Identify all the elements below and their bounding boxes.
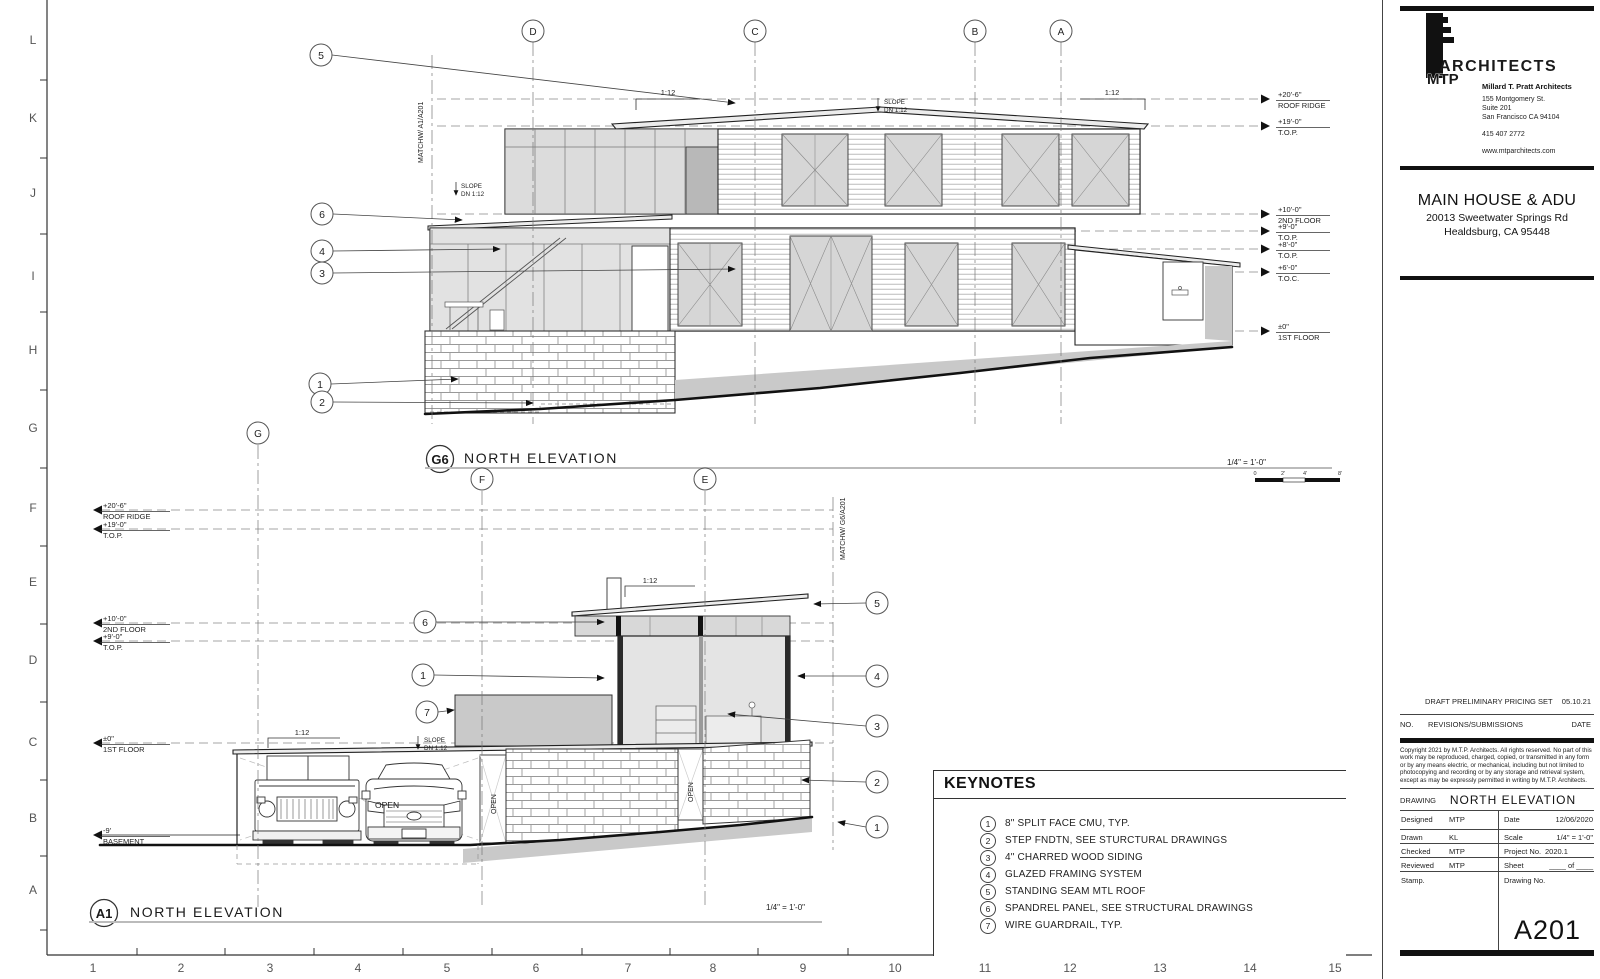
border-number: 15 [1328, 961, 1342, 975]
border-letter: C [29, 735, 38, 749]
keynote-text: 8" SPLIT FACE CMU, TYP. [1005, 818, 1130, 829]
scale-value: 1/4" = 1'-0" [1556, 833, 1593, 842]
keynote-item: 3 4" CHARRED WOOD SIDING [980, 849, 1346, 866]
keynote-ref: 1 [874, 822, 880, 834]
submission-date: 05.10.21 [1562, 697, 1591, 706]
level-marker: +9'-0" T.O.P. [1261, 222, 1330, 242]
level-value: +10'-0" [1278, 205, 1302, 214]
scalebar-tick: 2' [1281, 471, 1285, 477]
keynote-text: 4" CHARRED WOOD SIDING [1005, 852, 1143, 863]
grid-bubble-label: F [479, 475, 485, 486]
view-tag: G6 [431, 452, 448, 467]
grid-bubble-label: D [529, 27, 536, 38]
divider-bar [1400, 950, 1594, 956]
border-number: 12 [1063, 961, 1077, 975]
firm-address-line: San Francisco CA 94104 [1482, 114, 1559, 121]
border-letter: A [29, 883, 37, 897]
keynote-text: GLAZED FRAMING SYSTEM [1005, 869, 1142, 880]
revisions-header: REVISIONS/SUBMISSIONS [1428, 720, 1523, 729]
level-value: +10'-0" [103, 614, 127, 623]
firm-website: www.mtparchitects.com [1482, 148, 1556, 155]
level-marker: +9'-0" T.O.P. [93, 632, 170, 652]
sheet-label: Sheet [1504, 861, 1524, 870]
stamp-label: Stamp. [1401, 876, 1425, 885]
level-marker: ±0" 1ST FLOOR [1261, 322, 1330, 342]
keynote-item: 6 SPANDREL PANEL, SEE STRUCTURAL DRAWING… [980, 900, 1346, 917]
divider-line [1400, 843, 1594, 844]
keynote-ref: 6 [319, 209, 325, 221]
scalebar-tick: 8' [1338, 471, 1342, 477]
view-tag: A1 [96, 906, 113, 921]
level-name: ROOF RIDGE [1278, 101, 1326, 110]
border-number: 5 [444, 961, 451, 975]
firm-phone: 415 407 2772 [1482, 131, 1525, 138]
keynote-text: WIRE GUARDRAIL, TYP. [1005, 920, 1123, 931]
grid-bubble-label: B [972, 27, 979, 38]
view-scale: 1/4" = 1'-0" [1227, 458, 1266, 467]
border-letter: K [29, 111, 37, 125]
project-info: MAIN HOUSE & ADU 20013 Sweetwater Spring… [1400, 192, 1594, 238]
keynotes-title: KEYNOTES [934, 771, 1346, 799]
level-value: +19'-0" [103, 520, 127, 529]
level-name: T.O.C. [1278, 274, 1299, 283]
border-letter: B [29, 811, 37, 825]
level-marker: ±0" 1ST FLOOR [93, 734, 170, 754]
g6-matchline-label: MATCHW/ A1/A201 [418, 102, 425, 163]
a1-matchline-label: MATCHW/ G6/A201 [840, 497, 847, 560]
keynote-number: 2 [980, 833, 996, 849]
drawn-value: KL [1449, 833, 1458, 842]
keynote-ref: 2 [319, 397, 325, 409]
keynote-ref: 4 [874, 671, 880, 683]
keynote-ref: 3 [319, 268, 325, 280]
level-value: +6'-0" [1278, 263, 1298, 272]
graphic-scale-bar: 0 2' 4' 8' [1253, 471, 1342, 482]
keynotes-panel: KEYNOTES 1 8" SPLIT FACE CMU, TYP. 2 STE… [933, 770, 1346, 956]
border-number: 1 [90, 961, 97, 975]
level-marker: +19'-0" T.O.P. [93, 520, 170, 540]
keynote-ref: 2 [874, 777, 880, 789]
border-letter: H [29, 343, 38, 357]
project-name: MAIN HOUSE & ADU [1400, 192, 1594, 210]
keynote-ref: 1 [317, 379, 323, 391]
reviewed-label: Reviewed [1401, 861, 1434, 870]
view-title: NORTH ELEVATION [464, 450, 618, 466]
designed-value: MTP [1449, 815, 1465, 824]
keynote-ref: 4 [319, 246, 325, 258]
border-number: 10 [888, 961, 902, 975]
border-number: 6 [533, 961, 540, 975]
level-value: +19'-0" [1278, 117, 1302, 126]
revisions-date-header: DATE [1572, 720, 1591, 729]
date-label: Date [1504, 815, 1520, 824]
slope-ratio-label: 1:12 [1105, 88, 1120, 97]
keynote-ref: 6 [422, 617, 428, 629]
keynote-ref: 3 [874, 721, 880, 733]
border-row-letters: L K J I H G F E D C B A [28, 33, 37, 897]
divider-bar [1400, 166, 1594, 170]
level-value: +9'-0" [1278, 222, 1298, 231]
keynote-number: 5 [980, 884, 996, 900]
grid-bubble-label: G [254, 429, 262, 440]
checked-label: Checked [1401, 847, 1431, 856]
keynote-number: 7 [980, 918, 996, 934]
level-name: BASEMENT [103, 837, 145, 846]
level-marker: +19'-0" T.O.P. [1261, 117, 1330, 137]
border-letter: D [29, 653, 38, 667]
slope-ratio-label: 1:12 [643, 576, 658, 585]
level-value: +9'-0" [103, 632, 123, 641]
slope-dn-label: DN 1:12 [424, 745, 448, 752]
grid-bubble-label: A [1058, 27, 1065, 38]
border-number: 14 [1243, 961, 1257, 975]
g6-grid-bubbles: D C B A [522, 20, 1072, 42]
basement-dashed-outline [237, 845, 478, 864]
level-name: T.O.P. [103, 643, 123, 652]
project-no-value: 2020.1 [1545, 847, 1568, 856]
copyright-notice: Copyright 2021 by M.T.P. Architects. All… [1400, 747, 1594, 784]
level-name: 1ST FLOOR [103, 745, 145, 754]
keynote-item: 4 GLAZED FRAMING SYSTEM [980, 866, 1346, 883]
view-title: NORTH ELEVATION [130, 904, 284, 920]
keynote-item: 1 8" SPLIT FACE CMU, TYP. [980, 815, 1346, 832]
divider-line [1400, 871, 1594, 872]
project-address: 20013 Sweetwater Springs Rd [1400, 212, 1594, 224]
slope-dn-label: DN 1:12 [884, 107, 908, 114]
a1-level-markers: +20'-6" ROOF RIDGE +19'-0" T.O.P. +10'-0… [93, 501, 170, 846]
a1-north-elevation: MATCHW/ G6/A201 G F E 1:12 1:12 SLOPE DN… [89, 422, 888, 927]
date-value: 12/06/2020 [1555, 815, 1593, 824]
drawing-sheet: L K J I H G F E D C B A 1 2 3 4 5 6 7 8 … [0, 0, 1600, 979]
table-divider [1498, 810, 1499, 950]
border-number: 4 [355, 961, 362, 975]
level-marker: +10'-0" 2ND FLOOR [93, 614, 170, 634]
view-scale: 1/4" = 1'-0" [766, 903, 805, 912]
grid-bubble-label: E [702, 475, 709, 486]
divider-line [1400, 788, 1594, 789]
border-number: 7 [625, 961, 632, 975]
divider-bar [1400, 276, 1594, 280]
submission-label: DRAFT PRELIMINARY PRICING SET [1425, 697, 1553, 706]
elevation-drawings-canvas: L K J I H G F E D C B A 1 2 3 4 5 6 7 8 … [0, 0, 1600, 979]
g6-view-title: G6 NORTH ELEVATION 1/4" = 1'-0" 0 2' 4' … [425, 446, 1342, 483]
project-address: Healdsburg, CA 95448 [1400, 226, 1594, 238]
keynote-number: 4 [980, 867, 996, 883]
divider-line [1400, 857, 1594, 858]
level-marker: +20'-6" ROOF RIDGE [93, 501, 170, 521]
level-marker: -9' BASEMENT [93, 826, 170, 846]
slope-dn-label: SLOPE [461, 183, 482, 190]
keynote-text: STEP FNDTN, SEE STURCTURAL DRAWINGS [1005, 835, 1227, 846]
logo-mtp-text: MTP [1427, 71, 1459, 88]
vintage-suv [253, 756, 361, 845]
a1-view-title: A1 NORTH ELEVATION 1/4" = 1'-0" [89, 900, 822, 927]
border-letter: I [31, 269, 34, 283]
level-value: -9' [103, 826, 112, 835]
firm-name: Millard T. Pratt Architects [1482, 82, 1572, 91]
sheet-of-value: ____ of ____ [1549, 861, 1593, 870]
level-name: T.O.P. [1278, 128, 1298, 137]
slope-dn-label: SLOPE [884, 99, 905, 106]
keynote-ref: 7 [424, 707, 430, 719]
keynotes-list: 1 8" SPLIT FACE CMU, TYP. 2 STEP FNDTN, … [980, 815, 1346, 934]
divider-line [1400, 810, 1594, 811]
keynote-number: 6 [980, 901, 996, 917]
sheet-number: A201 [1514, 915, 1581, 946]
border-number: 11 [979, 961, 992, 975]
divider-line [1400, 829, 1594, 830]
scalebar-tick: 0 [1253, 471, 1256, 477]
keynote-ref: 1 [420, 670, 426, 682]
open-label: OPEN [688, 782, 695, 802]
drawing-no-label: Drawing No. [1504, 876, 1545, 885]
grid-bubble-label: C [751, 27, 758, 38]
border-number: 13 [1153, 961, 1167, 975]
scale-label: Scale [1504, 833, 1523, 842]
border-letter: F [29, 501, 36, 515]
level-value: +20'-6" [103, 501, 127, 510]
g6-building [425, 107, 1240, 414]
divider-bar [1400, 738, 1594, 743]
drawing-label: DRAWING [1400, 796, 1436, 805]
divider-line [1400, 714, 1594, 715]
border-letter: L [30, 33, 37, 47]
slope-dn-label: DN 1:12 [461, 191, 485, 198]
border-letter: J [30, 186, 36, 200]
keynote-item: 7 WIRE GUARDRAIL, TYP. [980, 917, 1346, 934]
border-number: 9 [800, 961, 807, 975]
scalebar-tick: 4' [1303, 471, 1307, 477]
firm-address-line: Suite 201 [1482, 105, 1512, 112]
border-column-numbers: 1 2 3 4 5 6 7 8 9 10 11 12 13 14 15 [90, 961, 1342, 975]
keynote-text: STANDING SEAM MTL ROOF [1005, 886, 1146, 897]
drawn-label: Drawn [1401, 833, 1423, 842]
open-label: OPEN [375, 800, 399, 810]
title-block: ARCHITECTS MTP Millard T. Pratt Architec… [1382, 0, 1600, 979]
level-marker: +8'-0" T.O.P. [1261, 240, 1330, 260]
keynote-text: SPANDREL PANEL, SEE STRUCTURAL DRAWINGS [1005, 903, 1253, 914]
keynote-number: 1 [980, 816, 996, 832]
border-letter: E [29, 575, 37, 589]
keynote-number: 3 [980, 850, 996, 866]
border-letter: G [28, 421, 37, 435]
level-name: T.O.P. [103, 531, 123, 540]
checked-value: MTP [1449, 847, 1465, 856]
slope-dn-label: SLOPE [424, 737, 445, 744]
slope-ratio-label: 1:12 [295, 728, 310, 737]
designed-label: Designed [1401, 815, 1433, 824]
keynote-ref: 5 [318, 50, 324, 62]
open-label: OPEN [491, 794, 498, 814]
border-number: 3 [267, 961, 274, 975]
g6-north-elevation: MATCHW/ A1/A201 D C B A 1:12 1:12 SLOPE … [309, 20, 1342, 482]
firm-address-line: 155 Montgomery St. [1482, 96, 1545, 103]
keynote-ref: 5 [874, 598, 880, 610]
border-number: 2 [178, 961, 185, 975]
g6-level-markers: +20'-6" ROOF RIDGE +19'-0" T.O.P. +10'-0… [1261, 90, 1330, 342]
project-no-label: Project No. [1504, 847, 1541, 856]
level-value: +8'-0" [1278, 240, 1298, 249]
keynote-item: 2 STEP FNDTN, SEE STURCTURAL DRAWINGS [980, 832, 1346, 849]
level-value: ±0" [1278, 322, 1289, 331]
level-value: +20'-6" [1278, 90, 1302, 99]
revisions-no-header: NO. [1400, 720, 1413, 729]
reviewed-value: MTP [1449, 861, 1465, 870]
level-marker: +20'-6" ROOF RIDGE [1261, 90, 1330, 110]
keynote-item: 5 STANDING SEAM MTL ROOF [980, 883, 1346, 900]
drawing-title: NORTH ELEVATION [1433, 793, 1593, 807]
level-value: ±0" [103, 734, 114, 743]
level-name: 1ST FLOOR [1278, 333, 1320, 342]
level-marker: +6'-0" T.O.C. [1261, 263, 1330, 283]
level-name: T.O.P. [1278, 251, 1298, 260]
border-number: 8 [710, 961, 717, 975]
